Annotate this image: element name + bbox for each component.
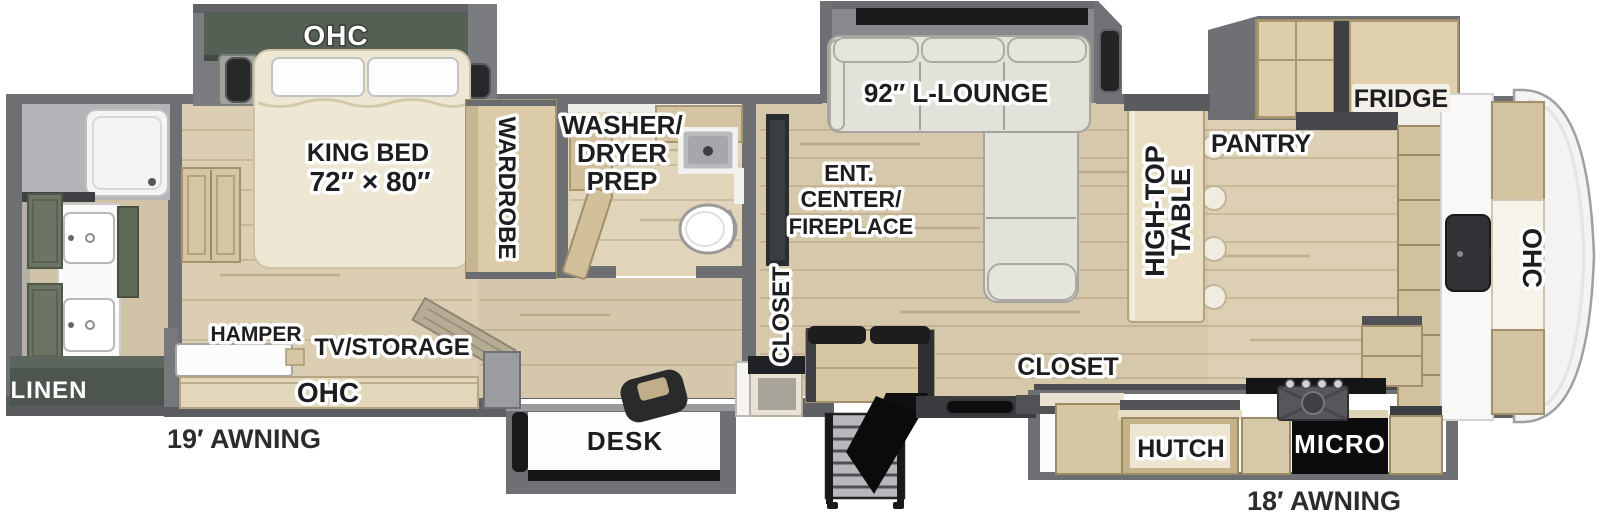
svg-text:OHC: OHC bbox=[303, 20, 368, 51]
svg-text:19′ AWNING: 19′ AWNING bbox=[167, 424, 321, 454]
svg-text:72″ × 80″: 72″ × 80″ bbox=[309, 166, 430, 197]
svg-text:FIREPLACE: FIREPLACE bbox=[789, 214, 914, 239]
svg-text:TV/STORAGE: TV/STORAGE bbox=[314, 334, 470, 361]
svg-text:HAMPER: HAMPER bbox=[210, 323, 301, 346]
svg-text:PREP: PREP bbox=[587, 166, 658, 196]
svg-text:CENTER/: CENTER/ bbox=[801, 186, 903, 212]
svg-text:ENT.: ENT. bbox=[824, 160, 874, 186]
svg-text:PANTRY: PANTRY bbox=[1211, 130, 1311, 158]
svg-text:CLOSET: CLOSET bbox=[1017, 353, 1118, 381]
svg-text:LINEN: LINEN bbox=[11, 377, 88, 404]
svg-text:FRIDGE: FRIDGE bbox=[1354, 85, 1448, 113]
svg-text:OHC: OHC bbox=[297, 377, 359, 408]
svg-text:MICRO: MICRO bbox=[1294, 429, 1386, 459]
svg-text:OHC: OHC bbox=[1517, 228, 1547, 288]
svg-text:CLOSET: CLOSET bbox=[768, 266, 795, 364]
svg-text:WARDROBE: WARDROBE bbox=[493, 117, 520, 260]
svg-text:92″ L-LOUNGE: 92″ L-LOUNGE bbox=[864, 78, 1048, 108]
svg-text:KING BED: KING BED bbox=[307, 139, 429, 167]
svg-text:DESK: DESK bbox=[587, 426, 663, 456]
svg-text:DRYER: DRYER bbox=[577, 138, 667, 168]
svg-text:18′ AWNING: 18′ AWNING bbox=[1247, 486, 1401, 513]
svg-text:HUTCH: HUTCH bbox=[1137, 435, 1225, 463]
svg-text:WASHER/: WASHER/ bbox=[561, 110, 682, 140]
svg-text:TABLE: TABLE bbox=[1166, 168, 1196, 256]
